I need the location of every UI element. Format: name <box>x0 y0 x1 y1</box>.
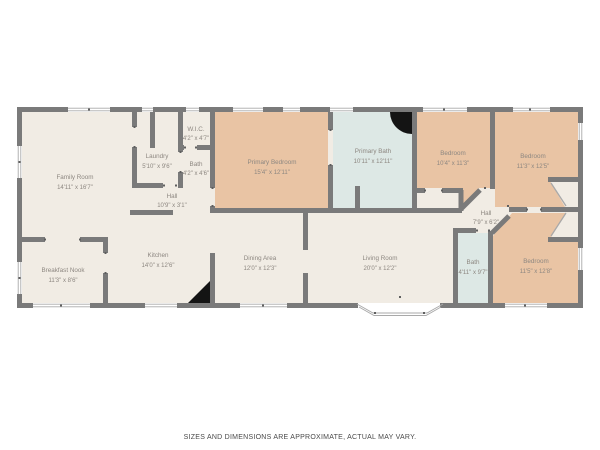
room-label-primary-bedroom: Primary Bedroom <box>248 159 297 166</box>
room-label-bedroom-front: Bedroom <box>440 150 466 157</box>
room-label-laundry: Laundry <box>146 153 170 160</box>
room-label-family-room: Family Room <box>56 174 93 181</box>
room-label-bedroom-back: Bedroom <box>523 258 549 265</box>
room-dims-bedroom-right: 11'3" x 12'5" <box>517 164 549 170</box>
room-dims-primary-bedroom: 15'4" x 12'11" <box>254 170 290 176</box>
room-dims-breakfast-nook: 11'3" x 8'6" <box>48 278 77 284</box>
room-dims-bath-2: 4'11" x 9'7" <box>458 270 487 276</box>
room-label-breakfast-nook: Breakfast Nook <box>41 267 85 274</box>
room-dims-living-room: 20'0" x 12'2" <box>364 266 397 272</box>
room-label-hall-2: Hall <box>481 210 492 217</box>
room-label-primary-bath: Primary Bath <box>355 148 392 155</box>
room-dims-hall-2: 7'9" x 6'2" <box>473 220 499 226</box>
room-label-wic: W.I.C. <box>187 126 204 133</box>
room-label-kitchen: Kitchen <box>147 252 169 259</box>
room-dims-bedroom-front: 10'4" x 11'3" <box>437 161 469 167</box>
room-label-living-room: Living Room <box>363 255 398 262</box>
room-label-dining-area: Dining Area <box>244 255 277 262</box>
room-dims-dining-area: 12'0" x 12'3" <box>244 266 277 272</box>
room-dims-primary-bath: 10'11" x 12'11" <box>354 159 393 165</box>
room-dims-laundry: 5'10" x 9'6" <box>142 164 172 170</box>
room-dims-wic: 4'2" x 4'7" <box>183 136 209 142</box>
room-label-bedroom-right: Bedroom <box>520 153 546 160</box>
room-dims-bath-hall: 4'2" x 4'6" <box>183 171 209 177</box>
room-dims-kitchen: 14'0" x 12'6" <box>142 263 175 269</box>
room-dims-hall: 10'9" x 3'1" <box>157 203 187 209</box>
room-dims-bedroom-back: 11'5" x 12'8" <box>520 269 552 275</box>
floor-plan: Family Room 14'11" x 16'7" Breakfast Noo… <box>0 0 600 450</box>
room-label-bath-2: Bath <box>467 259 480 266</box>
disclaimer-text: SIZES AND DIMENSIONS ARE APPROXIMATE, AC… <box>184 434 417 441</box>
room-floor-bath-2 <box>458 233 488 303</box>
room-label-hall: Hall <box>167 193 178 200</box>
room-dims-family-room: 14'11" x 16'7" <box>57 185 93 191</box>
floor-plan-page: Family Room 14'11" x 16'7" Breakfast Noo… <box>0 0 600 450</box>
room-label-bath-hall: Bath <box>190 161 203 168</box>
